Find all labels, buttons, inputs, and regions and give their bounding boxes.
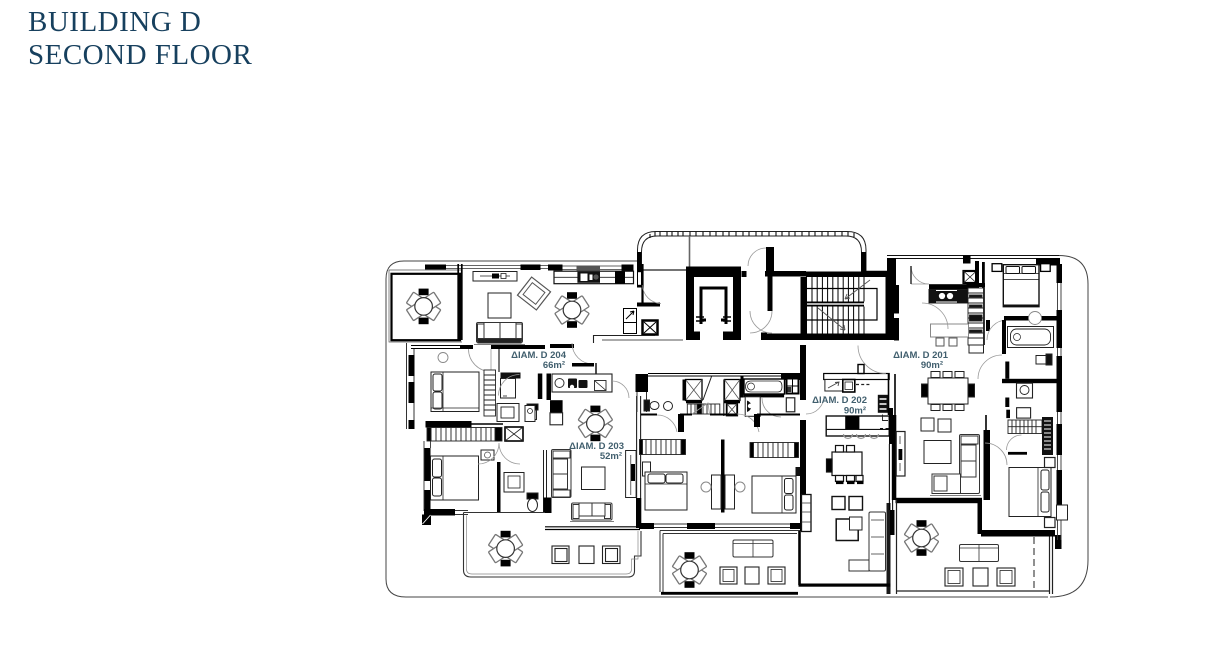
svg-text:52m²: 52m² bbox=[600, 451, 622, 462]
svg-text:90m²: 90m² bbox=[921, 360, 943, 371]
svg-text:66m²: 66m² bbox=[543, 360, 565, 371]
svg-text:ΔIAM. D 202: ΔIAM. D 202 bbox=[812, 395, 867, 406]
svg-text:90m²: 90m² bbox=[844, 406, 866, 417]
